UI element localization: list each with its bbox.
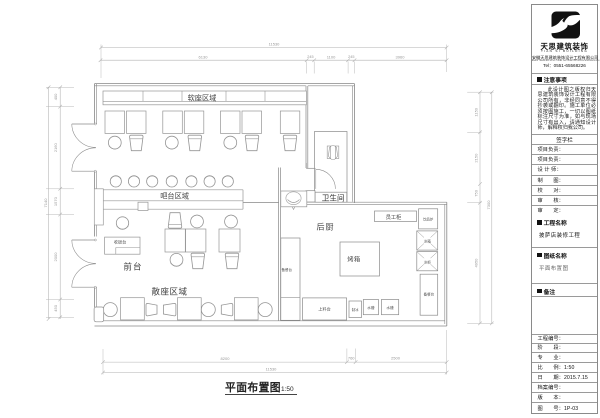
- svg-text:前台: 前台: [123, 262, 142, 272]
- svg-text:2500: 2500: [391, 356, 401, 361]
- svg-text:冰柜: 冰柜: [424, 259, 432, 264]
- svg-text:450: 450: [53, 304, 58, 311]
- svg-text:7140: 7140: [43, 198, 48, 208]
- svg-text:7300: 7300: [486, 200, 491, 210]
- svg-text:2150: 2150: [474, 153, 479, 163]
- svg-text:245: 245: [307, 55, 313, 59]
- svg-text:员工柜: 员工柜: [386, 213, 402, 221]
- svg-text:2000: 2000: [53, 252, 58, 262]
- svg-text:1570: 1570: [53, 196, 58, 206]
- svg-text:1150: 1150: [474, 107, 479, 116]
- svg-text:收银台: 收银台: [114, 239, 127, 246]
- svg-text:制冰: 制冰: [352, 307, 359, 312]
- svg-text:备餐台: 备餐台: [282, 267, 293, 272]
- svg-text:760: 760: [348, 356, 355, 361]
- svg-text:卫生间: 卫生间: [322, 192, 345, 202]
- svg-text:冰箱: 冰箱: [424, 239, 432, 244]
- svg-text:吧台区域: 吧台区域: [160, 192, 189, 201]
- svg-text:水槽: 水槽: [367, 305, 375, 310]
- svg-text:400: 400: [53, 93, 58, 100]
- svg-text:烤箱: 烤箱: [347, 256, 360, 264]
- svg-text:上料台: 上料台: [318, 306, 331, 313]
- svg-text:1100: 1100: [327, 54, 336, 59]
- svg-text:750: 750: [474, 189, 479, 196]
- svg-text:8200: 8200: [221, 356, 231, 361]
- svg-text:11530: 11530: [269, 42, 281, 47]
- svg-text:水槽: 水槽: [386, 305, 394, 310]
- svg-text:4950: 4950: [474, 258, 479, 268]
- svg-text:2160: 2160: [53, 142, 58, 152]
- svg-text:3960: 3960: [396, 54, 406, 59]
- svg-text:备餐台: 备餐台: [424, 291, 435, 296]
- svg-text:软座区域: 软座区域: [188, 94, 217, 103]
- svg-text:6130: 6130: [199, 54, 209, 59]
- svg-text:11530: 11530: [266, 367, 278, 372]
- svg-text:饮品炉: 饮品炉: [423, 216, 434, 221]
- svg-text:后厨: 后厨: [317, 222, 335, 232]
- svg-text:245: 245: [348, 55, 354, 59]
- svg-text:散座区域: 散座区域: [151, 287, 187, 297]
